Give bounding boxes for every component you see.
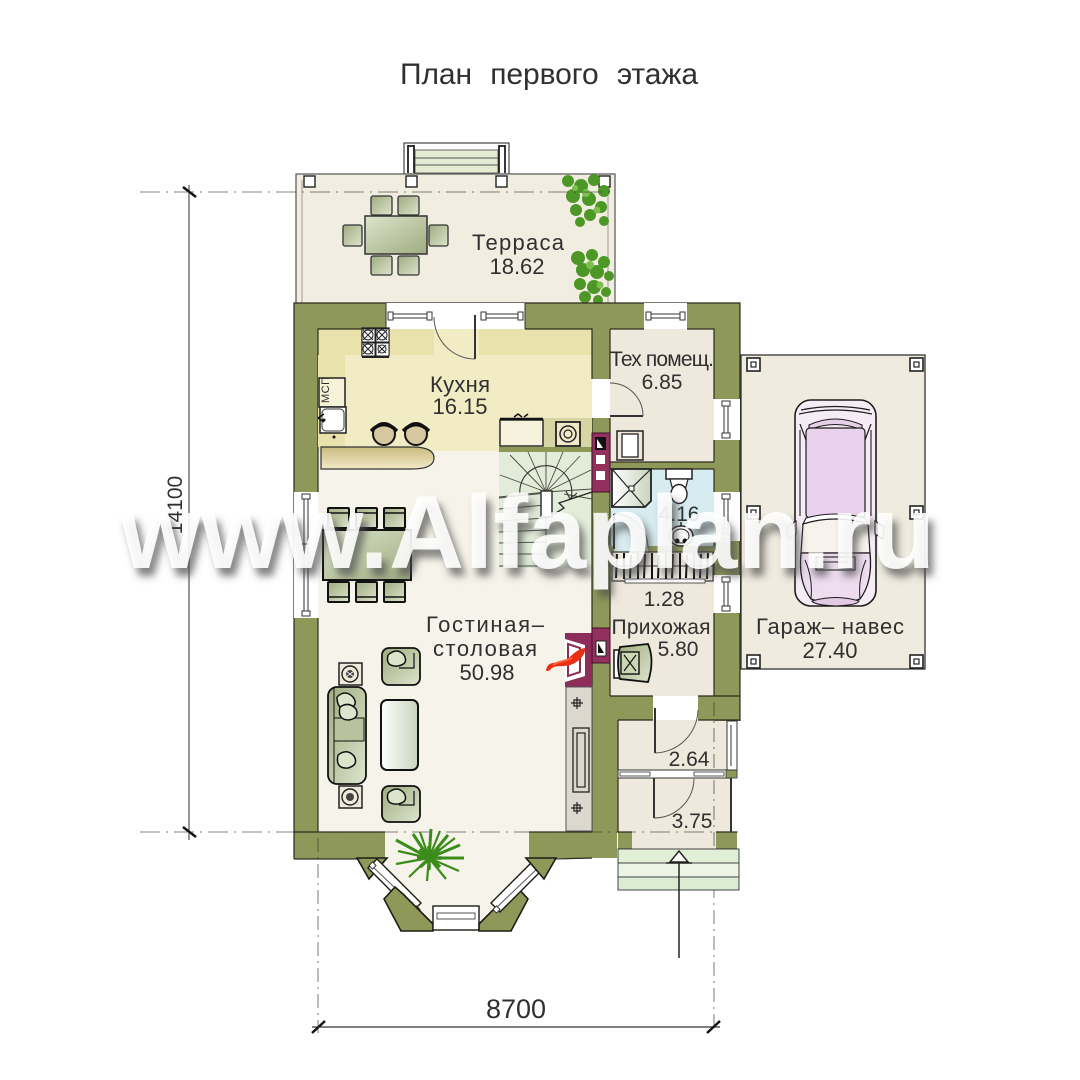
- svg-text:www.Alfaplan.ru: www.Alfaplan.ru: [119, 475, 935, 591]
- svg-text:План первого этажа: План первого этажа: [400, 58, 700, 91]
- svg-text:Терраса: Терраса: [472, 230, 565, 255]
- svg-text:8700: 8700: [486, 994, 546, 1024]
- svg-text:Тех помещ.: Тех помещ.: [610, 348, 714, 371]
- svg-text:5.80: 5.80: [658, 638, 699, 661]
- svg-text:Гостиная–: Гостиная–: [426, 612, 545, 637]
- svg-text:16.15: 16.15: [432, 394, 487, 419]
- svg-text:6.85: 6.85: [642, 371, 683, 394]
- svg-text:50.98: 50.98: [459, 660, 514, 685]
- svg-text:столовая: столовая: [433, 636, 537, 661]
- svg-text:Гараж– навес: Гараж– навес: [756, 614, 904, 639]
- svg-text:Прихожая: Прихожая: [612, 616, 711, 639]
- svg-text:18.62: 18.62: [489, 254, 544, 279]
- svg-text:27.40: 27.40: [802, 638, 857, 663]
- svg-text:МСП: МСП: [320, 377, 332, 403]
- svg-text:2.64: 2.64: [669, 748, 710, 771]
- svg-text:3.75: 3.75: [672, 810, 713, 833]
- svg-text:1.28: 1.28: [644, 588, 685, 611]
